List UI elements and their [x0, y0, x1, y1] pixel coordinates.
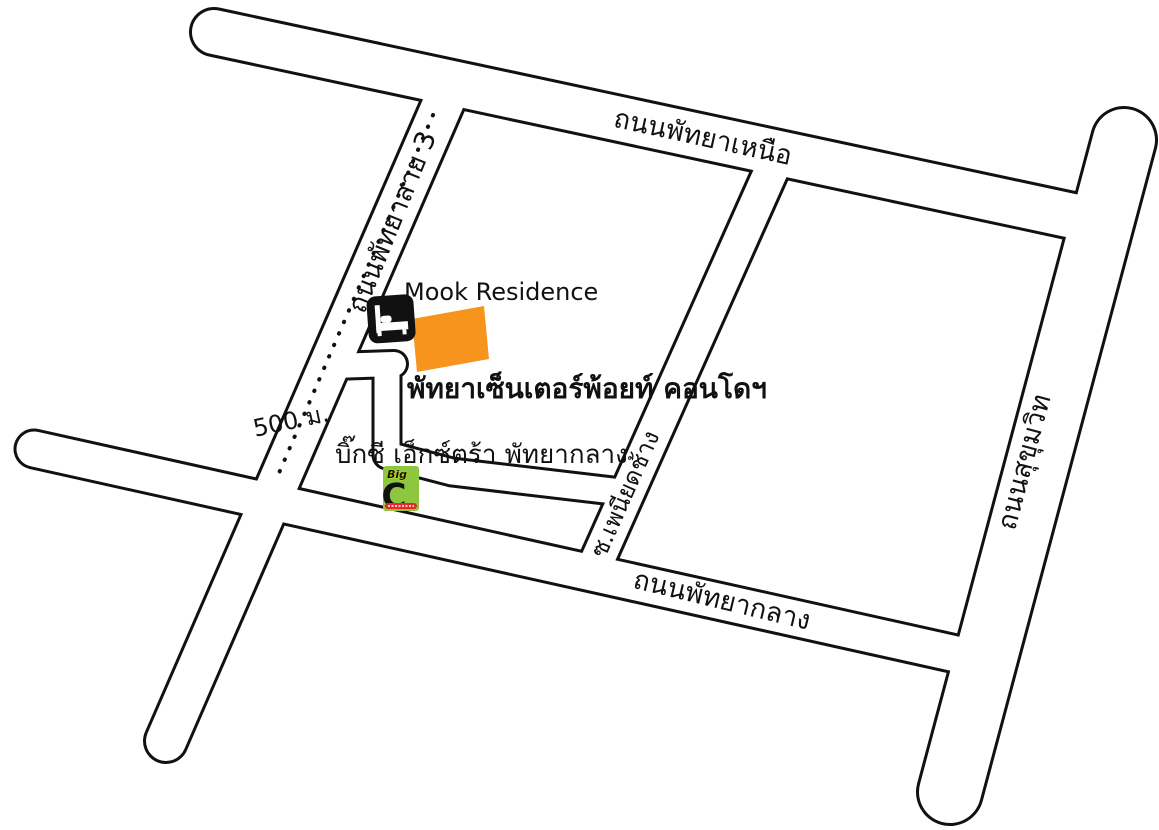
bed-leg-left: [377, 331, 381, 336]
label-mook-residence: Mook Residence: [404, 278, 598, 306]
bigc-logo: C Big: [382, 466, 419, 517]
map-canvas: C Big ถนนพัทยาเหนือ ถนนพัทยาสาย 3 ถนนสุข…: [0, 0, 1159, 830]
label-pattaya-center-point-condo: พัทยาเซ็นเตอร์พ้อยท์ คอนโดฯ: [407, 371, 767, 405]
bed-leg-right: [402, 329, 406, 334]
road-fills: [34, 32, 1124, 792]
label-bigc-extra: บิ๊กซี เอ็กซ์ตร้า พัทยากลาง: [335, 435, 628, 470]
bigc-logo-letter-c: C: [382, 477, 407, 517]
label-central-pattaya-road: ถนนพัทยากลาง: [630, 564, 813, 636]
pattaya-location-map: C Big ถนนพัทยาเหนือ ถนนพัทยาสาย 3 ถนนสุข…: [0, 0, 1159, 830]
condo-building-shape: [412, 306, 489, 372]
bed-pillow: [380, 315, 391, 323]
